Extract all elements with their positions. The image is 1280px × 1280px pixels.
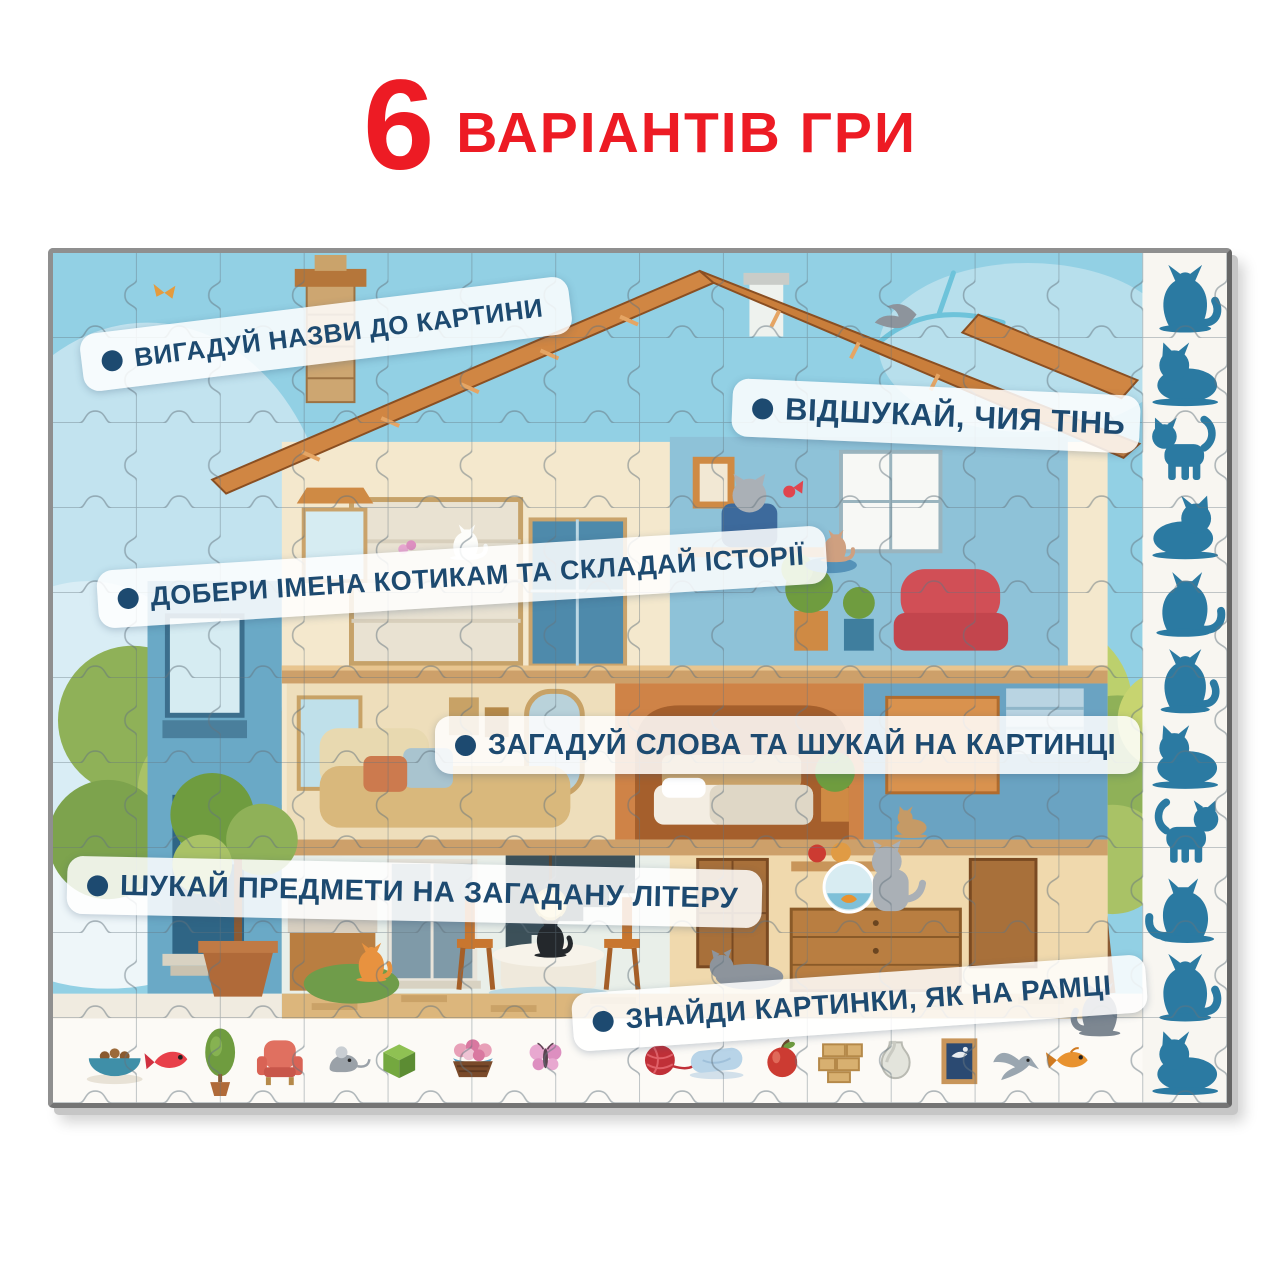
bullet-dot-icon <box>455 735 476 756</box>
bullet-dot-icon <box>87 875 108 896</box>
title-label: ВАРІАНТІВ ГРИ <box>456 86 917 166</box>
page-title: 6 ВАРІАНТІВ ГРИ <box>0 62 1280 190</box>
banner-label: ШУКАЙ ПРЕДМЕТИ НА ЗАГАДАНУ ЛІТЕРУ <box>120 869 739 915</box>
bullet-dot-icon <box>117 587 139 609</box>
banner-label: ВІДШУКАЙ, ЧИЯ ТІНЬ <box>784 391 1126 442</box>
title-count: 6 <box>363 62 434 190</box>
bullet-dot-icon <box>752 397 774 419</box>
bullet-dot-icon <box>100 349 123 372</box>
banner-guess-words: ЗАГАДУЙ СЛОВА ТА ШУКАЙ НА КАРТИНЦІ <box>435 716 1140 774</box>
puzzle-board: ВИГАДУЙ НАЗВИ ДО КАРТИНИ ВІДШУКАЙ, ЧИЯ Т… <box>48 248 1232 1108</box>
bullet-dot-icon <box>592 1010 614 1032</box>
banner-label: ЗАГАДУЙ СЛОВА ТА ШУКАЙ НА КАРТИНЦІ <box>488 729 1116 762</box>
